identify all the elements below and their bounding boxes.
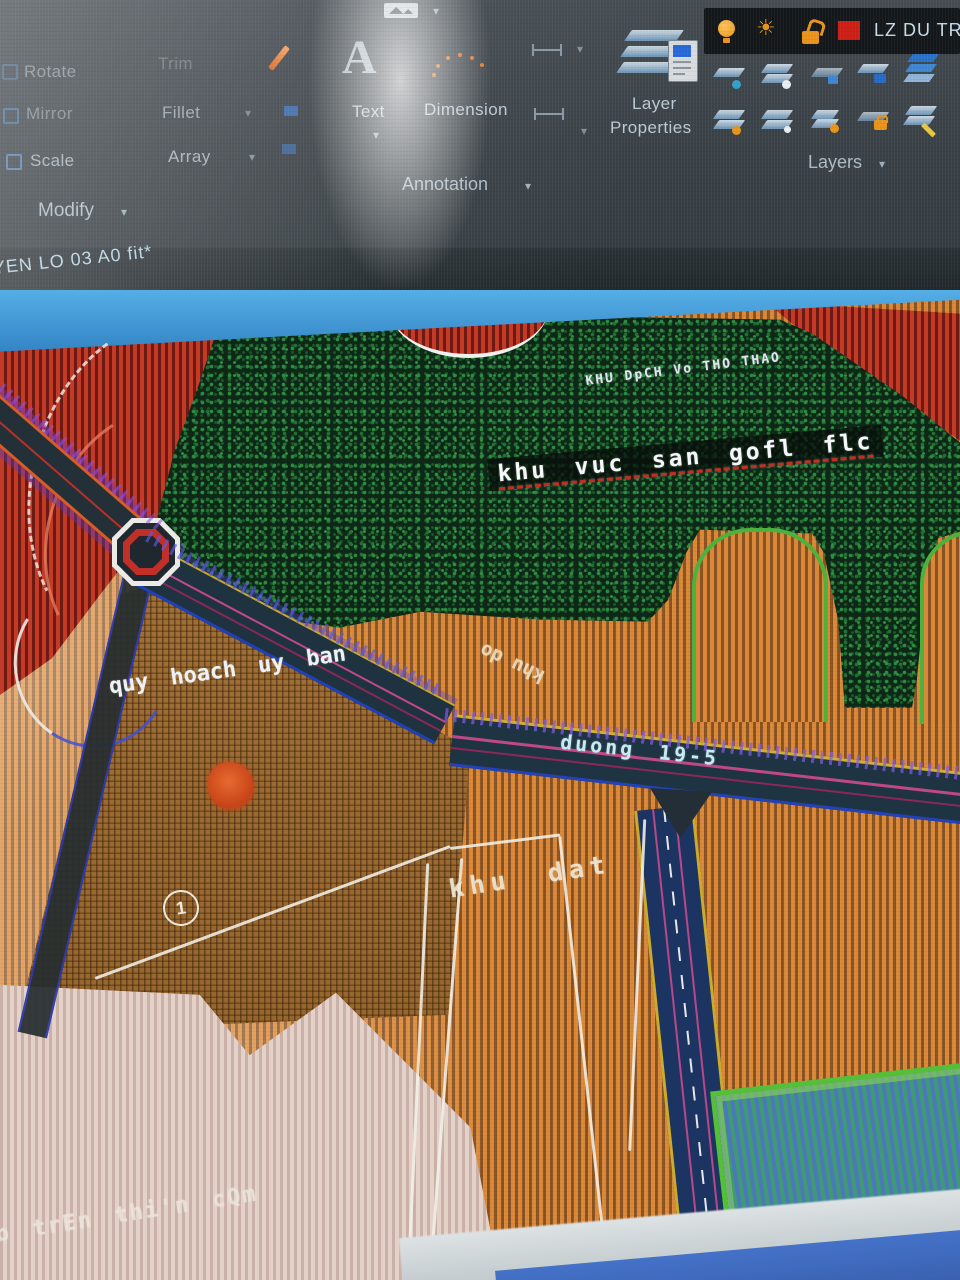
fillet-button[interactable]: Fillet	[162, 103, 200, 123]
mirror-icon	[3, 108, 19, 124]
parcel-line	[450, 833, 560, 849]
layers-panel-label[interactable]: Layers	[808, 152, 862, 173]
chevron-down-icon[interactable]: ▾	[249, 150, 255, 164]
parcel-line	[629, 819, 647, 1151]
ribbon-toolbar: ▾ Rotate Trim Mirror Fillet ▾ Scale Arra…	[0, 0, 960, 248]
label-land-area: khu dat	[447, 849, 613, 903]
layer-match-icon[interactable]	[906, 104, 946, 144]
layer-on-bulb-icon[interactable]	[718, 20, 735, 37]
layer-lock-icon[interactable]	[858, 108, 894, 144]
zone-orange-lobe	[920, 530, 960, 724]
scale-icon	[6, 154, 22, 170]
tool-icon[interactable]	[282, 144, 296, 154]
chevron-down-icon[interactable]: ▾	[433, 4, 439, 18]
zone-orange-lobe	[692, 528, 828, 722]
layer-off-icon[interactable]	[714, 64, 750, 98]
tool-icon[interactable]	[284, 106, 298, 116]
layer-unlock-icon[interactable]	[800, 20, 826, 46]
chevron-down-icon[interactable]: ▾	[245, 106, 251, 120]
modify-panel-label[interactable]: Modify	[38, 200, 94, 222]
chevron-down-icon[interactable]: ▾	[879, 157, 885, 171]
layer-walk-icon[interactable]	[906, 52, 946, 96]
trim-button[interactable]: Trim	[158, 54, 193, 74]
layer-properties-label-2[interactable]: Properties	[610, 118, 691, 138]
seal-symbol	[208, 762, 254, 810]
layer-freeze-icon[interactable]	[812, 62, 848, 96]
layer-properties-label-1[interactable]: Layer	[632, 94, 677, 114]
array-button[interactable]: Array	[168, 147, 211, 167]
label-rotated-khu-do: khu do	[477, 639, 549, 688]
parcel-line	[559, 836, 610, 1280]
annotation-panel-label[interactable]: Annotation	[402, 174, 488, 195]
file-tab-bar: YEN LO 03 A0 fit*	[0, 248, 960, 290]
quick-access-icon[interactable]	[384, 3, 418, 18]
drawing-viewport[interactable]: 1 KHU DpCH Vo THO THAO khu vuc san gofl …	[0, 290, 960, 1280]
chevron-down-icon[interactable]: ▾	[525, 179, 531, 193]
mirror-button[interactable]: Mirror	[26, 104, 73, 124]
layer-color-swatch[interactable]	[838, 21, 860, 40]
layer-thaw-all-icon[interactable]	[762, 108, 798, 144]
dim-linear-icon[interactable]	[532, 44, 562, 56]
chevron-down-icon[interactable]: ▾	[121, 205, 127, 219]
rotate-button[interactable]: Rotate	[24, 62, 77, 82]
dim-style-icon[interactable]	[534, 108, 564, 120]
layer-properties-icon[interactable]	[620, 26, 704, 92]
layer-prev-icon[interactable]	[812, 108, 848, 144]
layer-turn-on-icon[interactable]	[714, 108, 750, 144]
layer-lock-fade-icon[interactable]	[858, 60, 894, 94]
chevron-down-icon[interactable]: ▾	[577, 42, 583, 56]
dimension-button[interactable]: Dimension	[424, 100, 508, 120]
dimension-icon[interactable]	[436, 64, 440, 68]
layer-isolate-icon[interactable]	[762, 62, 798, 96]
text-tool-icon[interactable]: A	[342, 30, 377, 85]
current-layer-name[interactable]: LZ DU TRU	[874, 20, 960, 41]
pencil-icon	[268, 45, 290, 71]
chevron-down-icon[interactable]: ▾	[373, 128, 379, 142]
scale-button[interactable]: Scale	[30, 151, 75, 171]
text-button[interactable]: Text	[352, 102, 385, 122]
photographed-monitor: ▾ Rotate Trim Mirror Fillet ▾ Scale Arra…	[0, 0, 960, 1280]
layer-thaw-sun-icon[interactable]: ☀	[756, 16, 776, 41]
layer-control-bar[interactable]: ☀ LZ DU TRU	[704, 8, 960, 54]
rotate-icon	[2, 64, 18, 80]
chevron-down-icon[interactable]: ▾	[581, 124, 587, 138]
